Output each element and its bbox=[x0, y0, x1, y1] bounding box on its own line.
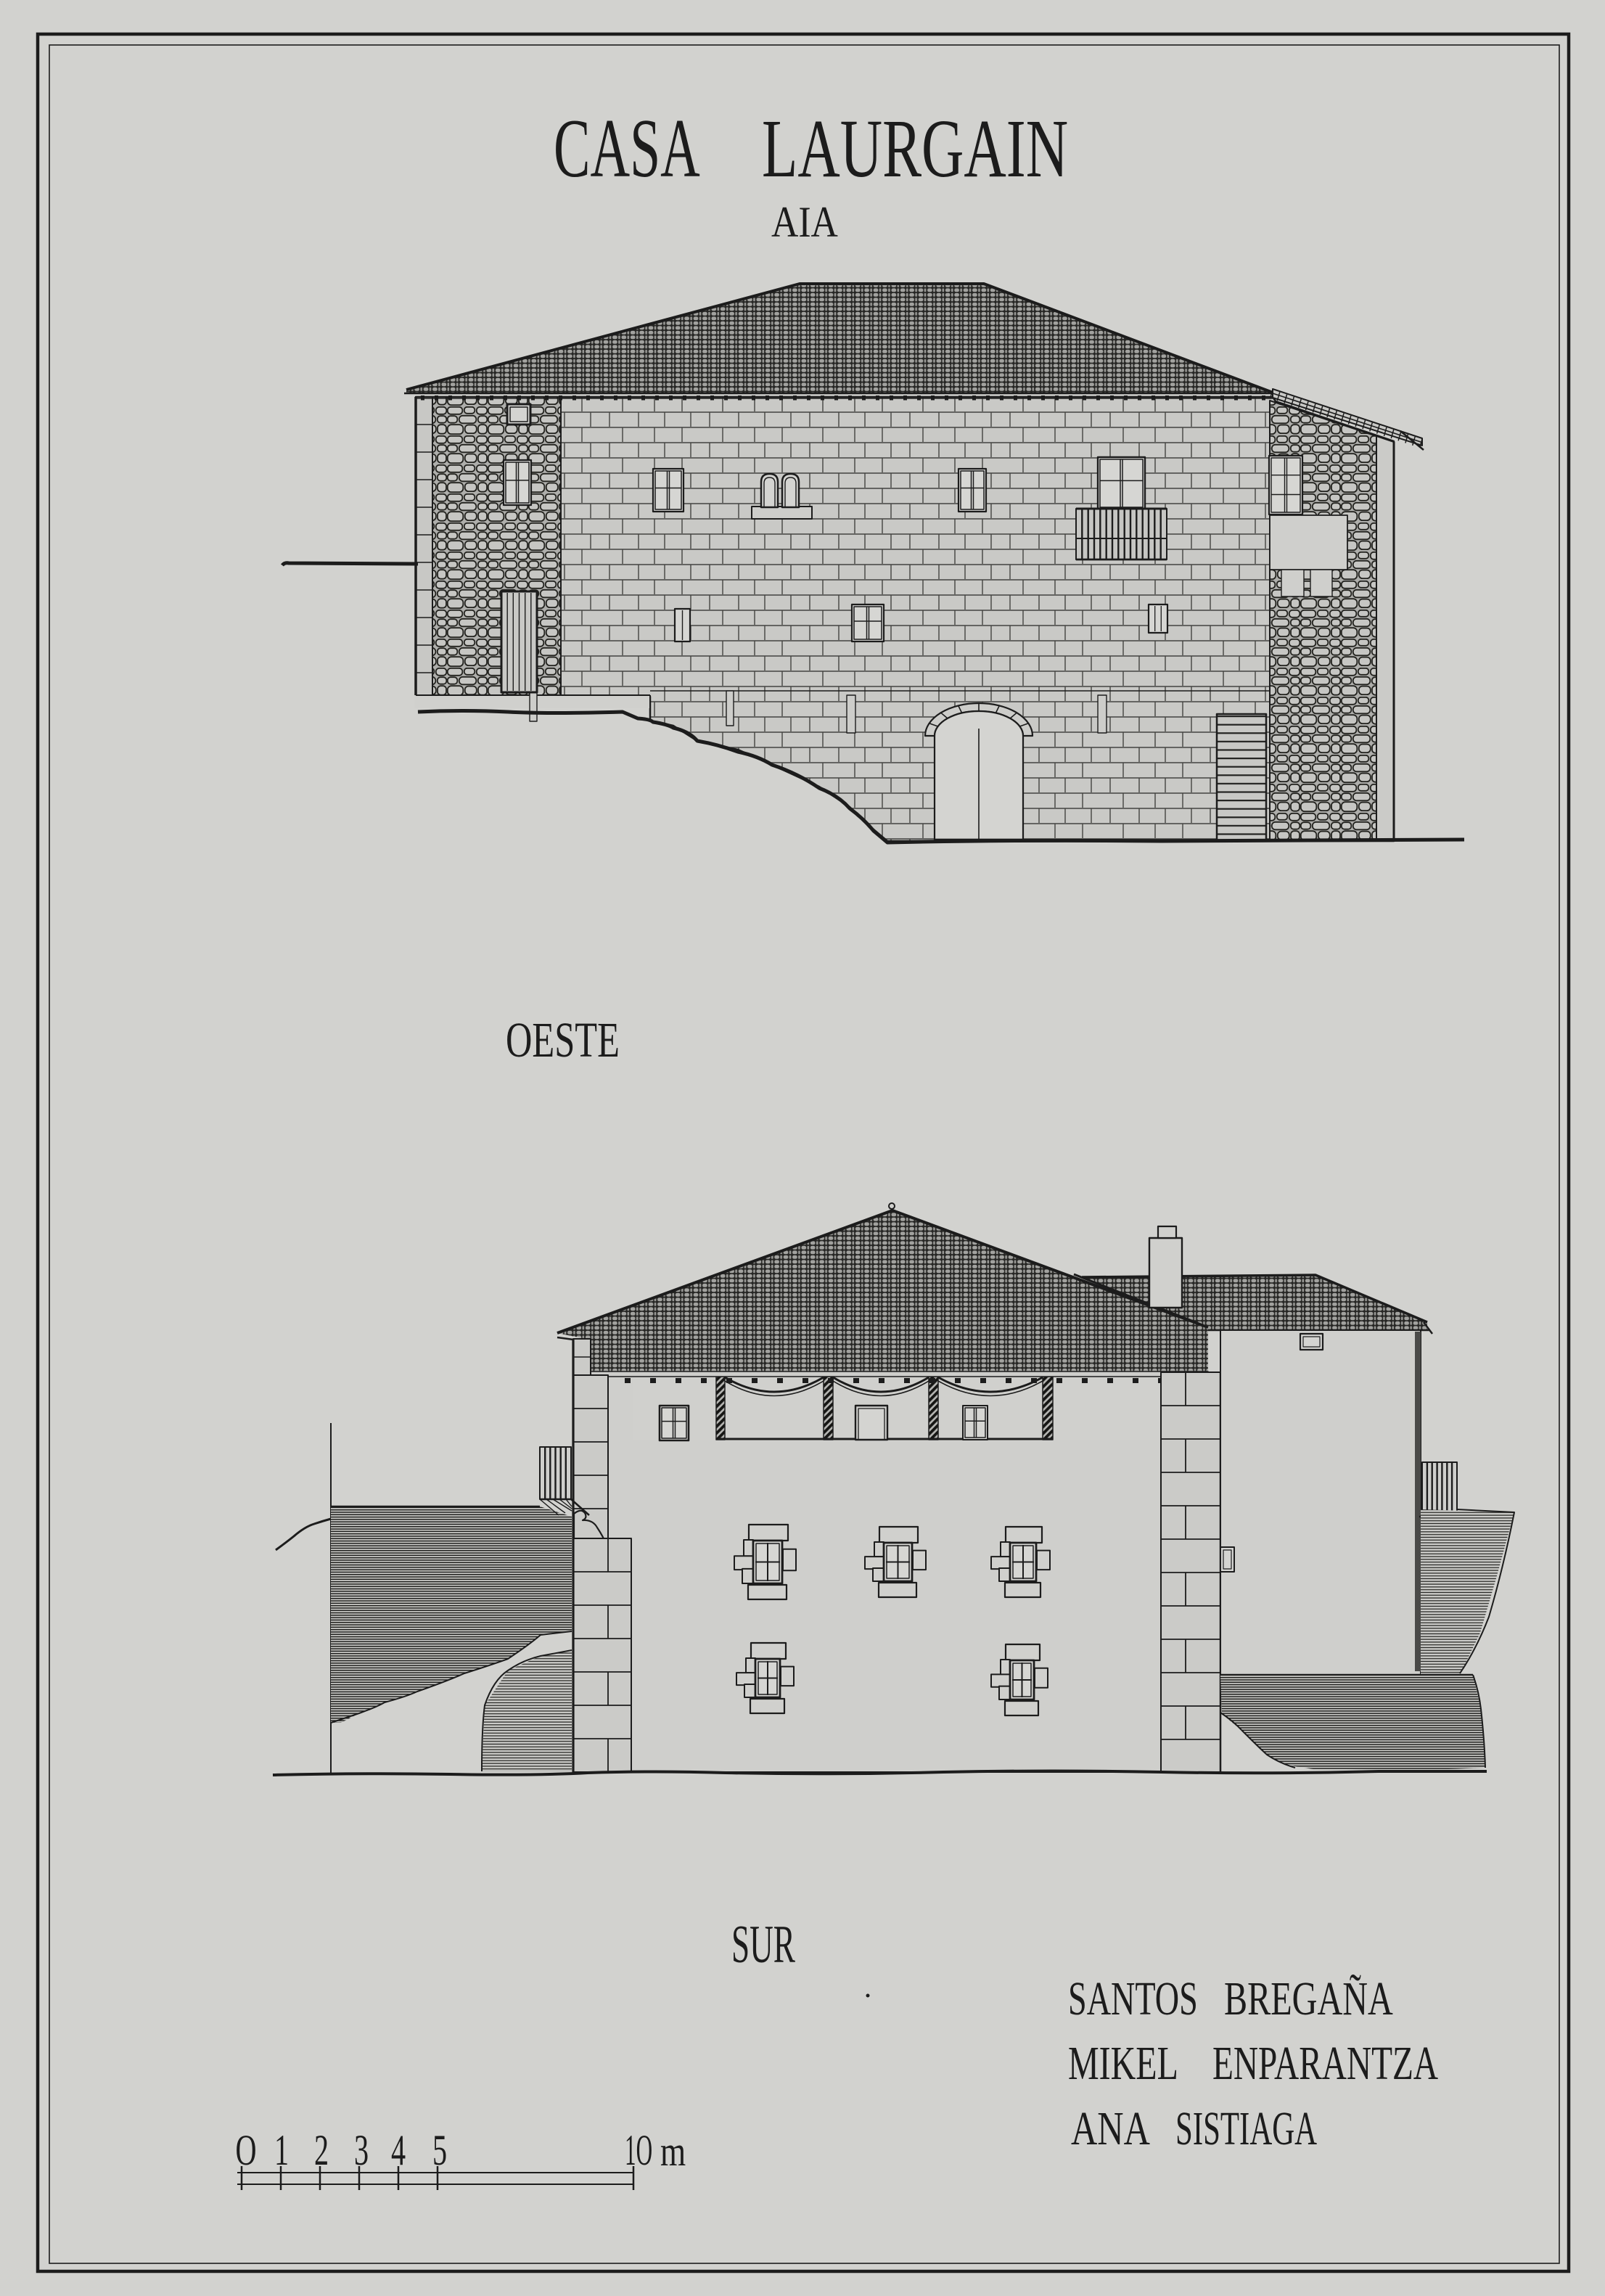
svg-text:MIKEL: MIKEL bbox=[1068, 2038, 1178, 2090]
svg-text:SISTIAGA: SISTIAGA bbox=[1175, 2102, 1317, 2156]
svg-text:3: 3 bbox=[354, 2126, 369, 2175]
svg-text:CASA: CASA bbox=[554, 102, 700, 195]
svg-text:OESTE: OESTE bbox=[506, 1012, 620, 1067]
svg-text:1O: 1O bbox=[625, 2126, 652, 2174]
svg-text:4: 4 bbox=[391, 2126, 406, 2175]
svg-text:SUR: SUR bbox=[731, 1915, 795, 1975]
svg-text:5: 5 bbox=[432, 2126, 447, 2175]
svg-text:O: O bbox=[235, 2126, 256, 2175]
svg-text:ANA: ANA bbox=[1071, 2102, 1150, 2155]
svg-text:ENPARANTZA: ENPARANTZA bbox=[1212, 2038, 1438, 2090]
svg-text:1: 1 bbox=[274, 2126, 289, 2175]
svg-text:LAURGAIN: LAURGAIN bbox=[762, 102, 1068, 194]
svg-text:m: m bbox=[660, 2129, 686, 2176]
svg-text:SANTOS: SANTOS bbox=[1068, 1972, 1198, 2025]
svg-text:2: 2 bbox=[314, 2126, 329, 2175]
svg-text:AIA: AIA bbox=[771, 199, 838, 247]
svg-text:BREGAÑA: BREGAÑA bbox=[1224, 1973, 1393, 2025]
